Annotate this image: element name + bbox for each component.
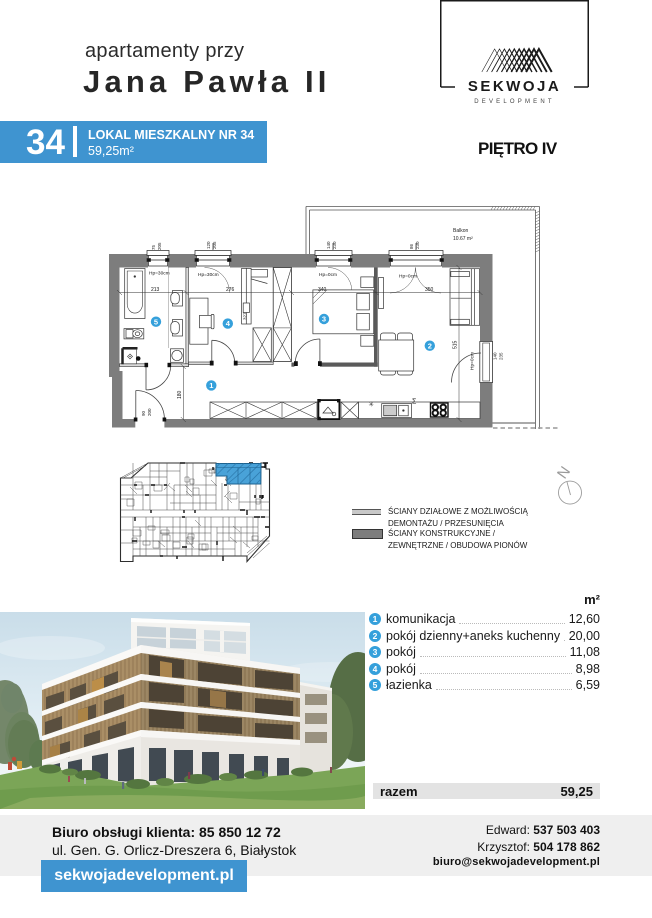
svg-text:75: 75 — [151, 244, 156, 250]
svg-text:Hp=0cm: Hp=0cm — [399, 274, 417, 280]
svg-text:90: 90 — [141, 410, 146, 416]
svg-text:140: 140 — [326, 241, 331, 249]
svg-text:Hp=30cm: Hp=30cm — [149, 271, 170, 277]
svg-text:515: 515 — [453, 340, 459, 349]
svg-text:235: 235 — [499, 352, 504, 360]
svg-text:2: 2 — [428, 341, 432, 350]
svg-text:276: 276 — [226, 287, 235, 293]
svg-text:140: 140 — [493, 352, 498, 360]
svg-text:1: 1 — [209, 381, 213, 390]
svg-text:Hp=30cm: Hp=30cm — [198, 272, 219, 278]
svg-text:3: 3 — [322, 315, 326, 324]
svg-text:86: 86 — [409, 243, 414, 249]
svg-text:230: 230 — [415, 241, 420, 249]
svg-text:180: 180 — [177, 390, 183, 399]
svg-text:340: 340 — [318, 287, 327, 293]
svg-text:✳: ✳ — [369, 401, 375, 409]
svg-text:5: 5 — [154, 317, 158, 326]
svg-text:Σ: Σ — [412, 399, 417, 406]
svg-text:200: 200 — [147, 408, 152, 416]
svg-text:Hp=0cm: Hp=0cm — [470, 352, 476, 370]
svg-text:205: 205 — [212, 241, 217, 249]
svg-text:230: 230 — [332, 241, 337, 249]
svg-text:205: 205 — [157, 242, 162, 250]
svg-text:327: 327 — [243, 312, 248, 320]
svg-text:120: 120 — [206, 241, 211, 249]
svg-text:350: 350 — [425, 287, 434, 293]
svg-text:10.67 m²: 10.67 m² — [453, 236, 473, 242]
svg-text:213: 213 — [151, 287, 160, 293]
svg-text:Balkon: Balkon — [453, 228, 469, 234]
svg-text:N: N — [554, 463, 574, 482]
svg-text:Hp=0cm: Hp=0cm — [319, 272, 337, 278]
